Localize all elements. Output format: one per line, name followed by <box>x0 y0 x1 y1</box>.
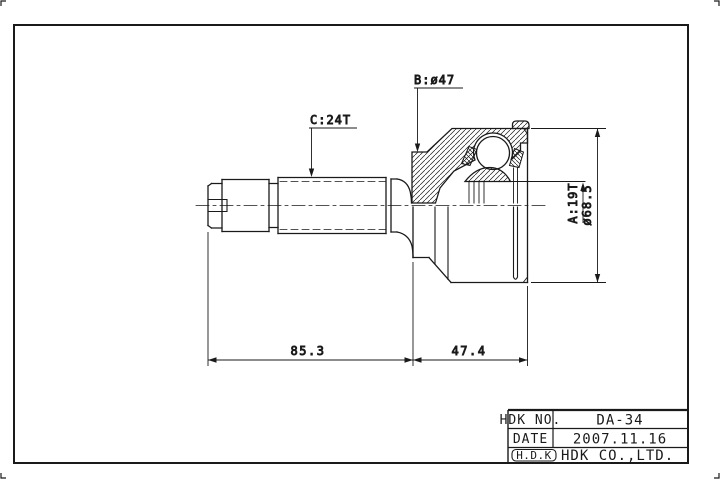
arrowhead <box>595 274 600 283</box>
label-spline-a: A:19T <box>566 182 580 223</box>
mouth-groove-section <box>514 168 518 203</box>
arrowhead <box>208 357 217 362</box>
ball-bearing <box>477 137 510 170</box>
arrowhead <box>413 357 422 362</box>
cage-section-right <box>510 149 524 168</box>
title-block: HDK NO. DA-34 DATE 2007.11.16 H.D.K HDK … <box>500 410 688 464</box>
arrowhead <box>309 169 314 178</box>
bell-housing-section <box>412 121 585 203</box>
arrowhead <box>519 357 528 362</box>
corner-marks <box>1 1 719 478</box>
cv-joint-view <box>196 121 585 283</box>
title-row1-value: DA-34 <box>596 413 643 429</box>
dim-shaft-length: 85.3 <box>291 344 326 358</box>
face-groove-external <box>514 207 518 279</box>
hdk-logo-text: H.D.K <box>516 449 552 462</box>
snap-ring-ear <box>513 121 530 129</box>
inner-race-section <box>465 168 511 182</box>
label-outer-diameter: ø68.5 <box>580 184 594 225</box>
title-row3-value: HDK CO.,LTD. <box>561 448 674 464</box>
cv-joint-technical-drawing: C:24T B:ø47 A:19T ø68.5 <box>0 0 720 479</box>
splined-shaft <box>278 178 413 258</box>
bell-back-fillet <box>397 232 413 258</box>
dim-joint-length: 47.4 <box>452 344 487 358</box>
title-row2-value: 2007.11.16 <box>573 432 667 448</box>
annotations: C:24T B:ø47 A:19T ø68.5 <box>208 73 606 366</box>
leader-spline-c <box>309 128 357 177</box>
inner-spline-bore-lines <box>469 182 484 204</box>
arrowhead <box>595 129 600 138</box>
label-diameter-b: B:ø47 <box>414 73 455 87</box>
spline-runout-top <box>397 179 412 203</box>
label-spline-c: C:24T <box>310 113 351 127</box>
drawing-sheet: C:24T B:ø47 A:19T ø68.5 <box>0 0 720 479</box>
drawing-frame <box>14 25 688 463</box>
title-row1-label: HDK NO. <box>500 413 562 428</box>
title-row2-label: DATE <box>513 432 548 447</box>
arrowhead <box>405 357 414 362</box>
arrowhead <box>415 144 420 153</box>
